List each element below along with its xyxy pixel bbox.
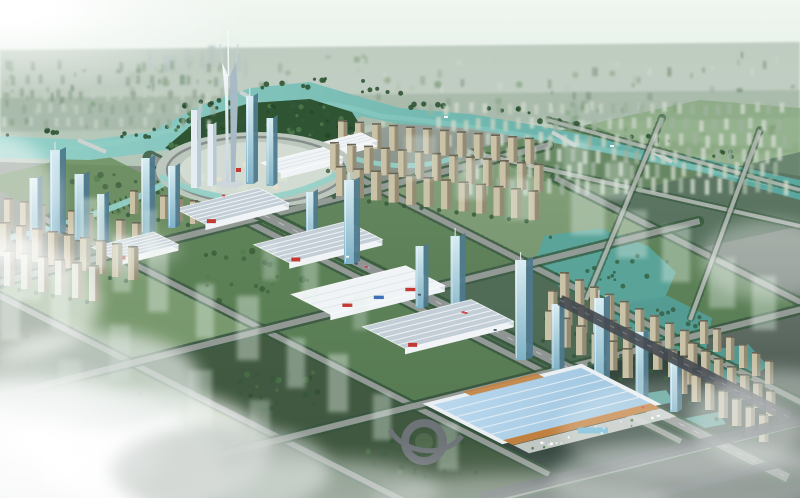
tree	[402, 204, 406, 208]
slab-front	[440, 130, 446, 156]
tower-side	[526, 257, 533, 360]
distant-grove	[361, 54, 365, 58]
far-slab	[704, 106, 709, 116]
tower-side	[60, 147, 66, 234]
slab-roof	[130, 190, 138, 192]
slab-front	[623, 348, 629, 378]
tree	[266, 290, 270, 294]
ghost-building	[196, 284, 214, 338]
lake-tree	[615, 260, 619, 264]
far-slab	[624, 102, 629, 112]
slab-roof	[330, 142, 339, 144]
slab-side	[640, 310, 645, 334]
bank-tree	[367, 87, 372, 92]
slab-roof	[440, 130, 449, 132]
tree	[126, 213, 130, 217]
slab-roof	[449, 155, 458, 157]
tree	[248, 394, 252, 398]
far-slab	[601, 135, 606, 147]
bank-tree	[279, 81, 284, 86]
tree	[276, 377, 282, 383]
far-slab	[762, 120, 767, 131]
far-slab	[651, 177, 656, 192]
slab-roof	[508, 136, 517, 138]
distant-building	[409, 86, 415, 89]
far-slab	[717, 178, 722, 193]
far-slab	[716, 105, 721, 115]
far-slab	[697, 163, 702, 177]
far-slab	[624, 150, 629, 163]
slab-roof	[635, 308, 644, 310]
far-slab	[776, 120, 781, 131]
bank-tree	[398, 91, 403, 96]
far-slab	[207, 91, 211, 100]
ghost-building	[617, 210, 647, 258]
distant-grove	[574, 114, 579, 119]
distant-building	[221, 88, 224, 97]
slab-side	[437, 155, 442, 181]
slab-side	[377, 172, 382, 200]
slab-front	[449, 155, 455, 183]
far-slab	[508, 104, 513, 114]
slab-roof	[354, 168, 364, 170]
slab-front	[560, 272, 566, 298]
distant-building	[751, 68, 754, 76]
far-slab	[161, 104, 165, 113]
car	[222, 195, 225, 197]
tree	[255, 373, 259, 377]
distant-building	[396, 81, 400, 91]
slab-side	[743, 346, 747, 368]
slab-front	[364, 146, 370, 174]
far-slab	[104, 118, 108, 127]
tree	[254, 284, 259, 289]
slab-roof	[575, 279, 584, 281]
distant-building	[65, 106, 68, 111]
far-slab	[207, 63, 211, 72]
tree	[244, 372, 250, 378]
roof-banner	[342, 304, 352, 307]
slab-front	[500, 160, 506, 188]
far-slab	[530, 117, 535, 128]
far-slab	[686, 148, 691, 161]
slab-front	[347, 144, 353, 172]
ghost-building	[287, 338, 305, 388]
tree	[275, 402, 279, 406]
far-slab	[521, 102, 526, 112]
slab-roof	[623, 348, 633, 350]
slab-roof	[372, 123, 381, 125]
slab-side	[565, 274, 570, 298]
tree	[454, 210, 458, 214]
far-slab	[660, 117, 665, 128]
ghost-building	[353, 294, 367, 330]
distant-building	[365, 56, 367, 63]
far-slab	[469, 102, 474, 112]
cloud	[560, 380, 800, 480]
far-slab	[712, 120, 717, 131]
tree	[241, 256, 246, 261]
slab-roof	[371, 170, 381, 172]
bank-tree	[122, 131, 127, 136]
tower-side	[197, 108, 201, 188]
distant-building	[357, 67, 359, 73]
slab-side	[613, 342, 618, 370]
far-slab	[766, 104, 771, 114]
distant-grove	[285, 70, 291, 76]
tree	[309, 130, 314, 135]
distant-grove	[434, 81, 442, 89]
tree	[472, 212, 476, 216]
far-slab	[679, 133, 684, 145]
bank-tree	[143, 134, 148, 139]
slab-side	[628, 350, 633, 378]
slab-front	[534, 164, 540, 192]
slab-front	[160, 195, 165, 219]
far-slab	[612, 147, 617, 160]
tree	[326, 169, 330, 173]
plaza-building	[211, 186, 216, 191]
slab-roof	[500, 160, 509, 162]
ghost-building	[373, 394, 391, 440]
slab-roof	[534, 164, 543, 166]
slab-front	[650, 315, 656, 341]
far-slab	[138, 103, 142, 112]
slab-front	[726, 336, 731, 360]
tree	[70, 179, 76, 185]
slab-side	[539, 166, 544, 192]
tree	[288, 110, 291, 113]
bank-tree	[313, 78, 316, 81]
slab-front	[441, 179, 447, 209]
far-slab	[193, 89, 197, 98]
tree	[572, 354, 576, 358]
tree	[295, 114, 298, 117]
slab-roof	[688, 342, 697, 344]
far-slab	[482, 103, 487, 113]
slab-side	[670, 324, 675, 348]
far-slab	[765, 150, 770, 163]
far-slab	[715, 149, 720, 162]
far-slab	[154, 88, 158, 97]
slab-roof	[336, 166, 346, 168]
tree	[188, 127, 191, 130]
tree	[266, 110, 269, 113]
bank-tree	[322, 79, 325, 82]
tree	[367, 199, 371, 203]
bank-tree	[408, 105, 413, 110]
distant-building	[497, 83, 502, 89]
tower-side	[354, 177, 360, 264]
ghost-building	[563, 140, 589, 180]
slab-front	[371, 170, 377, 200]
far-slab	[743, 179, 748, 194]
far-slab	[735, 162, 740, 176]
tree	[290, 102, 296, 108]
lake-tree	[656, 308, 659, 311]
far-slab	[143, 117, 147, 126]
slab-side	[580, 281, 585, 305]
far-slab	[168, 91, 172, 100]
slab-front	[457, 131, 463, 157]
tower-front	[208, 124, 214, 186]
car	[418, 294, 421, 296]
far-slab	[99, 104, 103, 113]
distant-building	[592, 67, 598, 76]
slab-side	[534, 192, 539, 220]
far-slab	[599, 103, 604, 113]
bank-tree	[528, 111, 531, 114]
far-slab	[782, 135, 787, 147]
tree	[298, 104, 303, 109]
far-slab	[719, 134, 724, 146]
far-slab	[88, 105, 92, 114]
slab-roof	[457, 131, 466, 133]
slab-front	[620, 301, 626, 327]
slab-roof	[389, 173, 399, 175]
tree	[301, 118, 305, 122]
distant-building	[776, 55, 779, 63]
master-plan-rendering	[0, 0, 800, 498]
slab-side	[530, 140, 535, 164]
far-slab	[749, 164, 754, 178]
tree	[224, 255, 228, 259]
far-slab	[619, 118, 624, 129]
plaza-red-roof	[236, 168, 241, 172]
slab-roof	[713, 328, 721, 330]
far-slab	[560, 180, 565, 195]
far-slab	[615, 134, 620, 146]
distant-building	[278, 63, 282, 72]
tree	[215, 106, 219, 110]
tree	[237, 378, 243, 384]
far-slab	[596, 150, 601, 163]
distant-grove	[572, 72, 578, 78]
far-slab	[584, 104, 589, 114]
slab-roof	[525, 138, 534, 140]
slab-roof	[752, 352, 760, 354]
slab-side	[134, 192, 138, 214]
far-slab	[539, 132, 544, 144]
tree	[325, 132, 331, 138]
far-slab	[699, 121, 704, 132]
distant-building	[9, 119, 14, 126]
far-slab	[549, 103, 554, 113]
tree	[322, 105, 325, 108]
far-slab	[29, 117, 33, 126]
distant-building	[710, 86, 714, 93]
far-slab	[655, 164, 660, 178]
bank-tree	[487, 106, 491, 110]
tree	[489, 215, 493, 219]
far-slab	[608, 119, 613, 130]
far-slab	[690, 179, 695, 194]
tree	[419, 206, 423, 210]
slab-roof	[491, 134, 500, 136]
far-slab	[690, 105, 695, 115]
slab-front	[336, 166, 342, 196]
ghost-building	[263, 244, 277, 280]
far-slab	[729, 179, 734, 194]
slab-front	[576, 325, 582, 355]
slab-front	[525, 138, 531, 164]
far-slab	[517, 151, 522, 164]
far-slab	[693, 133, 698, 145]
slab-side	[704, 322, 708, 344]
far-slab	[739, 121, 744, 132]
far-slab	[747, 133, 752, 145]
far-slab	[673, 151, 678, 164]
far-slab	[37, 103, 41, 112]
far-slab	[771, 135, 776, 147]
distant-building	[763, 61, 767, 69]
tree	[325, 112, 331, 118]
tree	[206, 275, 210, 279]
slab-roof	[381, 147, 390, 149]
far-slab	[429, 104, 434, 114]
slab-roof	[576, 325, 586, 327]
car	[365, 266, 368, 268]
far-slab	[111, 105, 115, 114]
far-slab	[569, 119, 574, 130]
lake-tree	[630, 259, 635, 264]
slab-side	[447, 181, 452, 209]
far-slab	[640, 135, 645, 147]
distant-building	[648, 68, 652, 75]
tree	[134, 180, 137, 183]
tree	[302, 393, 307, 398]
slab-roof	[739, 344, 747, 346]
far-slab	[627, 135, 632, 147]
slab-front	[130, 190, 135, 214]
tree	[296, 127, 301, 132]
distant-building	[376, 93, 381, 100]
lake-tree	[599, 278, 601, 280]
far-slab	[44, 120, 48, 129]
tree	[311, 370, 315, 374]
ghost-building	[507, 178, 533, 220]
far-slab	[773, 162, 778, 176]
far-slab	[74, 105, 78, 114]
slab-roof	[701, 350, 710, 352]
distant-building	[637, 77, 641, 83]
tree	[275, 388, 279, 392]
distant-grove	[147, 85, 151, 89]
tree	[115, 182, 121, 188]
distant-building	[2, 117, 6, 127]
slab-roof	[423, 128, 432, 130]
far-slab	[497, 105, 502, 115]
tree	[541, 339, 545, 343]
bank-tree	[361, 90, 364, 93]
distant-grove	[565, 110, 571, 116]
distant-building	[737, 88, 743, 92]
distant-building	[647, 93, 652, 101]
slab-roof	[700, 320, 708, 322]
tree	[97, 172, 103, 178]
far-slab	[48, 103, 52, 112]
far-slab	[758, 135, 763, 147]
distant-grove	[609, 70, 615, 76]
far-slab	[143, 89, 147, 98]
far-slab	[654, 134, 659, 146]
far-slab	[671, 166, 676, 180]
slab-side	[369, 148, 374, 174]
slab-roof	[494, 186, 504, 188]
tree	[238, 391, 243, 396]
far-slab	[682, 163, 687, 177]
slab-roof	[680, 330, 689, 332]
distant-building	[667, 67, 671, 76]
slab-roof	[605, 294, 614, 296]
roof-banner	[374, 296, 384, 299]
far-slab	[560, 104, 565, 114]
boat	[610, 145, 614, 147]
tree	[259, 396, 263, 400]
far-slab	[777, 148, 782, 161]
distant-grove	[495, 98, 502, 105]
tower-side	[273, 115, 277, 186]
bank-tree	[305, 84, 310, 89]
far-slab	[94, 120, 98, 129]
slab-side	[479, 135, 484, 159]
bank-tree	[120, 135, 123, 138]
far-slab	[503, 120, 508, 131]
slab-roof	[560, 272, 569, 274]
distant-grove	[631, 83, 635, 87]
tree	[310, 110, 314, 114]
distant-building	[573, 92, 576, 100]
tree	[258, 276, 261, 279]
far-slab	[723, 164, 728, 178]
slab-front	[739, 344, 744, 368]
distant-building	[621, 108, 624, 113]
far-slab	[491, 119, 496, 130]
distant-building	[158, 110, 161, 114]
car	[494, 329, 497, 331]
far-slab	[748, 118, 753, 129]
far-slab	[580, 120, 585, 131]
far-slab	[156, 120, 160, 129]
slab-side	[386, 149, 391, 175]
bank-tree	[260, 86, 264, 90]
far-slab	[451, 120, 456, 131]
distant-building	[741, 52, 743, 58]
slab-side	[164, 197, 168, 219]
tree	[587, 362, 591, 366]
tree	[311, 402, 315, 406]
tree	[273, 105, 277, 109]
far-slab	[180, 92, 184, 101]
tower-front	[191, 110, 197, 188]
bank-tree	[435, 102, 441, 108]
slab-roof	[474, 133, 483, 135]
far-slab	[573, 104, 578, 114]
far-slab	[662, 102, 667, 112]
tree	[649, 369, 653, 373]
distant-building	[180, 75, 185, 85]
slab-front	[508, 136, 514, 162]
tree	[271, 283, 274, 286]
bank-tree	[537, 118, 543, 124]
distant-grove	[354, 56, 361, 63]
car	[355, 263, 358, 265]
bank-tree	[719, 150, 723, 154]
slab-roof	[765, 360, 773, 362]
far-slab	[476, 118, 481, 129]
lake-tree	[610, 274, 614, 278]
distant-building	[456, 60, 462, 65]
